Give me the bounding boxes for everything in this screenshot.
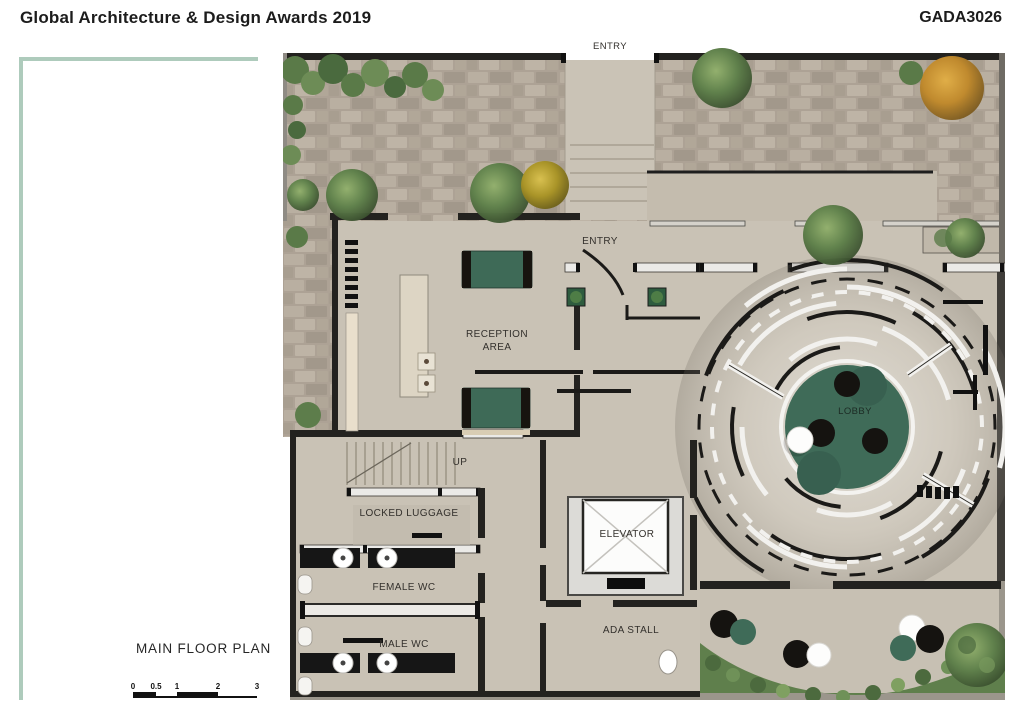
scale-tick-0: 0 [124,682,142,691]
label-reception-line2: AREA [437,342,557,353]
accent-line-vertical [19,57,23,700]
label-reception-line1: RECEPTION [437,329,557,340]
label-male-wc: MALE WC [344,639,464,650]
page-title: Global Architecture & Design Awards 2019 [20,8,371,28]
scale-tick-2: 2 [209,682,227,691]
label-up: UP [445,457,475,468]
label-locked-luggage: LOCKED LUGGAGE [334,508,484,519]
scale-bar: 0 0.5 1 2 3 [130,682,260,702]
page: Global Architecture & Design Awards 2019… [0,0,1024,724]
label-ada-stall: ADA STALL [581,625,681,636]
terrace [700,581,1005,700]
scale-tick-05: 0.5 [147,682,165,691]
scale-segment-1 [133,692,156,698]
floor-plan-drawing [283,45,1005,700]
label-lobby: LOBBY [815,406,895,417]
accent-line-horizontal [19,57,258,61]
project-code: GADA3026 [919,9,1002,27]
label-entry-inner: ENTRY [560,236,640,247]
sofa-top [462,251,532,288]
elevator [568,497,683,595]
plan-title: MAIN FLOOR PLAN [136,641,271,656]
label-elevator: ELEVATOR [577,529,677,540]
floor-plan [283,45,1005,700]
side-panel [346,313,358,431]
scale-segment-3 [177,692,218,698]
scale-segment-2 [156,696,177,698]
label-entry-top: ENTRY [570,41,650,52]
sofa-bottom [462,388,530,435]
elevator-door [607,578,645,589]
scale-segment-4 [218,696,257,698]
ada-toilet [659,650,677,674]
scale-tick-3: 3 [248,682,266,691]
label-female-wc: FEMALE WC [344,582,464,593]
scale-tick-1: 1 [168,682,186,691]
